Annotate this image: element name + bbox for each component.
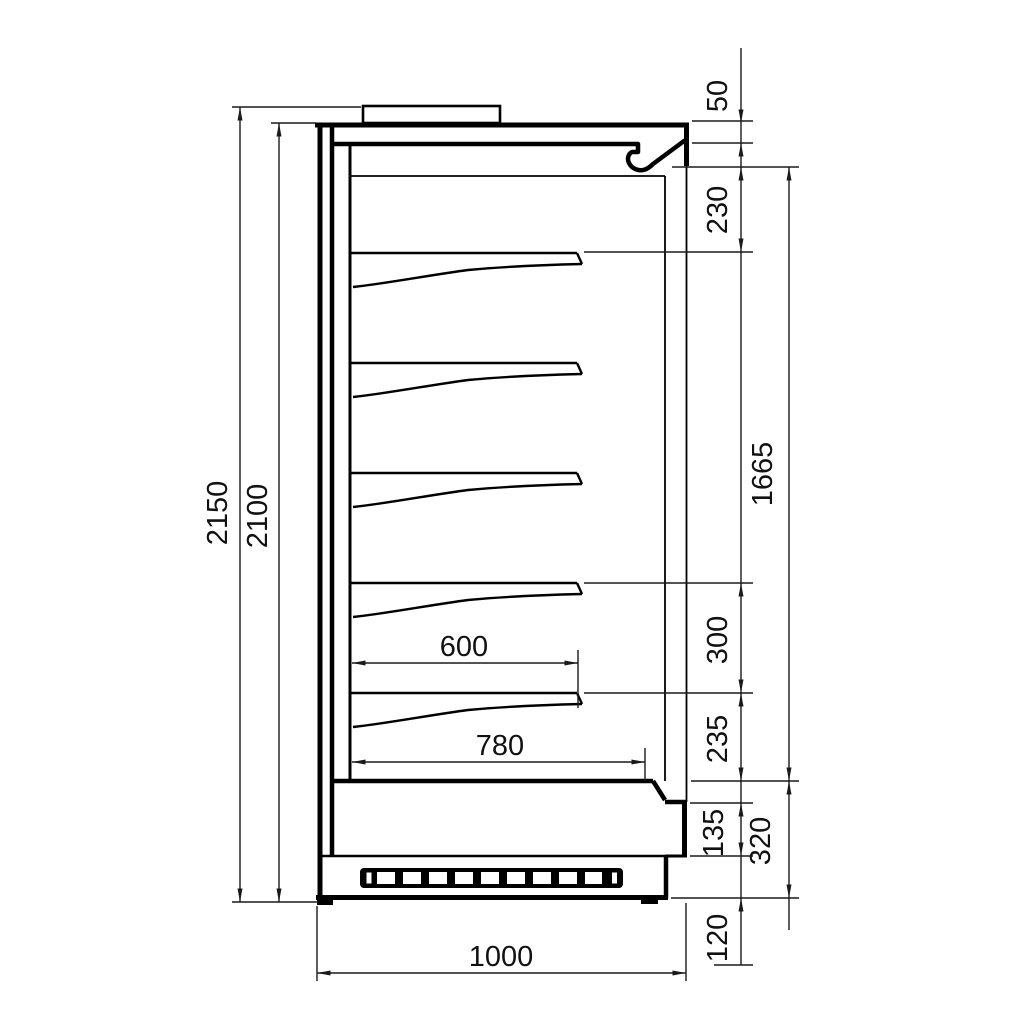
dim-overall-height-label: 2150 <box>202 481 234 546</box>
dim-interior-height-label: 1665 <box>747 442 779 507</box>
dim-cabinet-height-label: 2100 <box>242 484 274 549</box>
cabinet-outline <box>315 106 689 905</box>
dim-cabinet-height: 2100 <box>242 123 316 902</box>
shelf-2 <box>351 363 582 397</box>
shelf-3 <box>351 473 582 507</box>
dim-shelf-depth: 600 <box>352 631 578 708</box>
dim-plinth-height-label: 120 <box>702 914 734 962</box>
shelf-5 <box>351 693 582 727</box>
top-cap <box>363 106 500 123</box>
air-discharge-profile <box>628 141 684 170</box>
foot-right <box>641 896 658 904</box>
dim-canopy-to-shelf-label: 230 <box>702 186 734 234</box>
dim-deck-depth: 780 <box>352 730 645 781</box>
canopy <box>315 123 689 171</box>
dim-shelf-spacing-label: 300 <box>702 616 734 664</box>
dim-column-outer: 1665 320 <box>745 167 792 930</box>
dim-overall-depth-label: 1000 <box>469 941 534 973</box>
dim-overall-depth: 1000 <box>317 903 686 981</box>
dim-step-height-label: 135 <box>698 809 730 857</box>
drawing-canvas: 2150 2100 50 230 30 <box>0 0 1024 1024</box>
bottom-deck <box>330 781 687 857</box>
technical-drawing-page: 2150 2100 50 230 30 <box>0 0 1024 1024</box>
foot-left <box>317 896 333 905</box>
dim-deck-depth-label: 780 <box>476 730 524 762</box>
dim-canopy-front-label: 50 <box>702 80 734 112</box>
ventilation-grille <box>360 868 623 888</box>
shelf-4 <box>351 583 582 617</box>
dim-shelf-to-deck-label: 235 <box>702 715 734 763</box>
dim-shelf-depth-label: 600 <box>440 631 488 663</box>
base-plinth <box>316 856 687 905</box>
shelf-1 <box>351 253 582 287</box>
dim-base-height-label: 320 <box>745 817 777 865</box>
